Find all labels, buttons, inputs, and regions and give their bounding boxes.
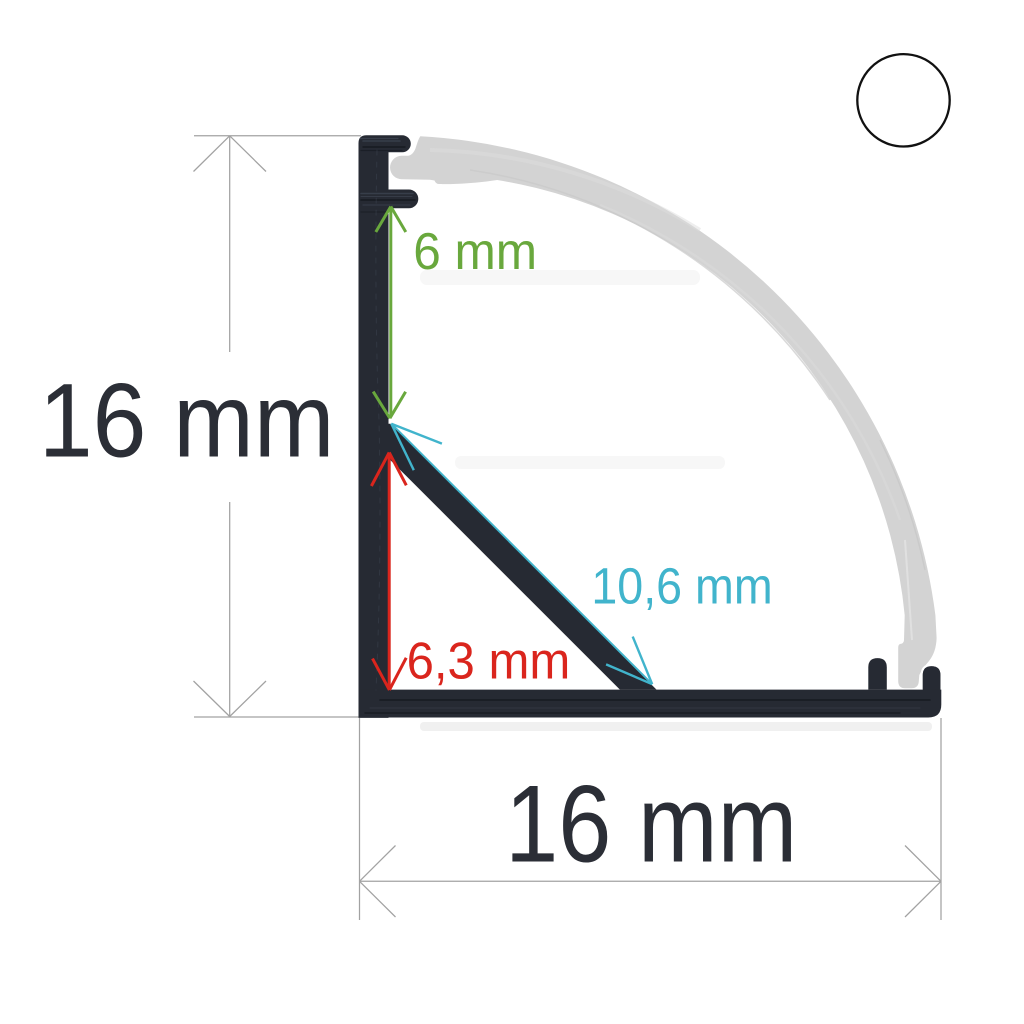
- svg-text:16 mm: 16 mm: [505, 763, 797, 885]
- svg-text:16 mm: 16 mm: [39, 362, 335, 479]
- svg-text:6,3 mm: 6,3 mm: [407, 632, 571, 690]
- svg-text:10,6 mm: 10,6 mm: [591, 557, 772, 614]
- svg-text:6 mm: 6 mm: [413, 222, 537, 280]
